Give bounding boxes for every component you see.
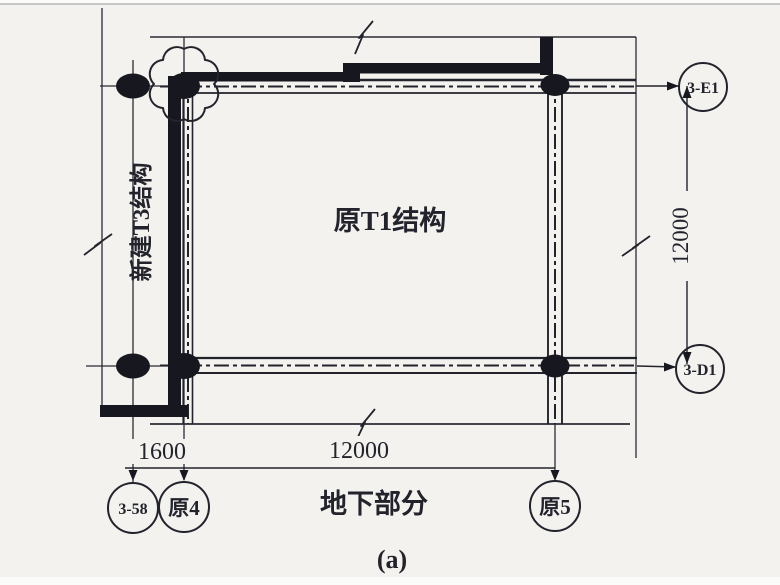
- page-top-rule: [0, 3, 780, 5]
- column-dot: [168, 353, 200, 379]
- label-underground: 地下部分: [320, 488, 428, 519]
- dimension-12000-bottom: 12000: [329, 438, 389, 464]
- label-original-structure: 原T1结构: [334, 206, 447, 236]
- label-new-structure: 新建T3结构: [128, 163, 154, 282]
- new-wall-top-band-upper: [343, 63, 553, 74]
- bubble-label-3-e1: 3-E1: [687, 80, 719, 97]
- bubble-label-yuan4: 原4: [168, 496, 200, 520]
- column-dot: [541, 355, 570, 378]
- dimension-1600: 1600: [138, 439, 186, 465]
- new-wall-top-band-lower: [181, 72, 351, 82]
- drawing-page: 1600 12000 12000 原T1结构 新建T3结构 地下部分 (a) 3…: [0, 0, 780, 585]
- new-wall-bottom-flange: [100, 405, 188, 417]
- figure-caption: (a): [377, 545, 407, 574]
- bubble-label-yuan5: 原5: [539, 495, 571, 519]
- new-wall-step-block: [343, 63, 360, 82]
- bubble-label-3-d1: 3-D1: [684, 362, 717, 379]
- new-wall-top-riser: [540, 37, 553, 75]
- column-dot: [116, 354, 150, 379]
- column-dot: [116, 74, 150, 99]
- dimension-12000-right: 12000: [668, 207, 693, 265]
- bubble-label-3-58: 3-58: [118, 501, 147, 518]
- column-dot: [541, 74, 570, 96]
- column-dot: [168, 73, 200, 99]
- structural-plan-figure: 1600 12000 12000 原T1结构 新建T3结构 地下部分 (a) 3…: [0, 0, 780, 585]
